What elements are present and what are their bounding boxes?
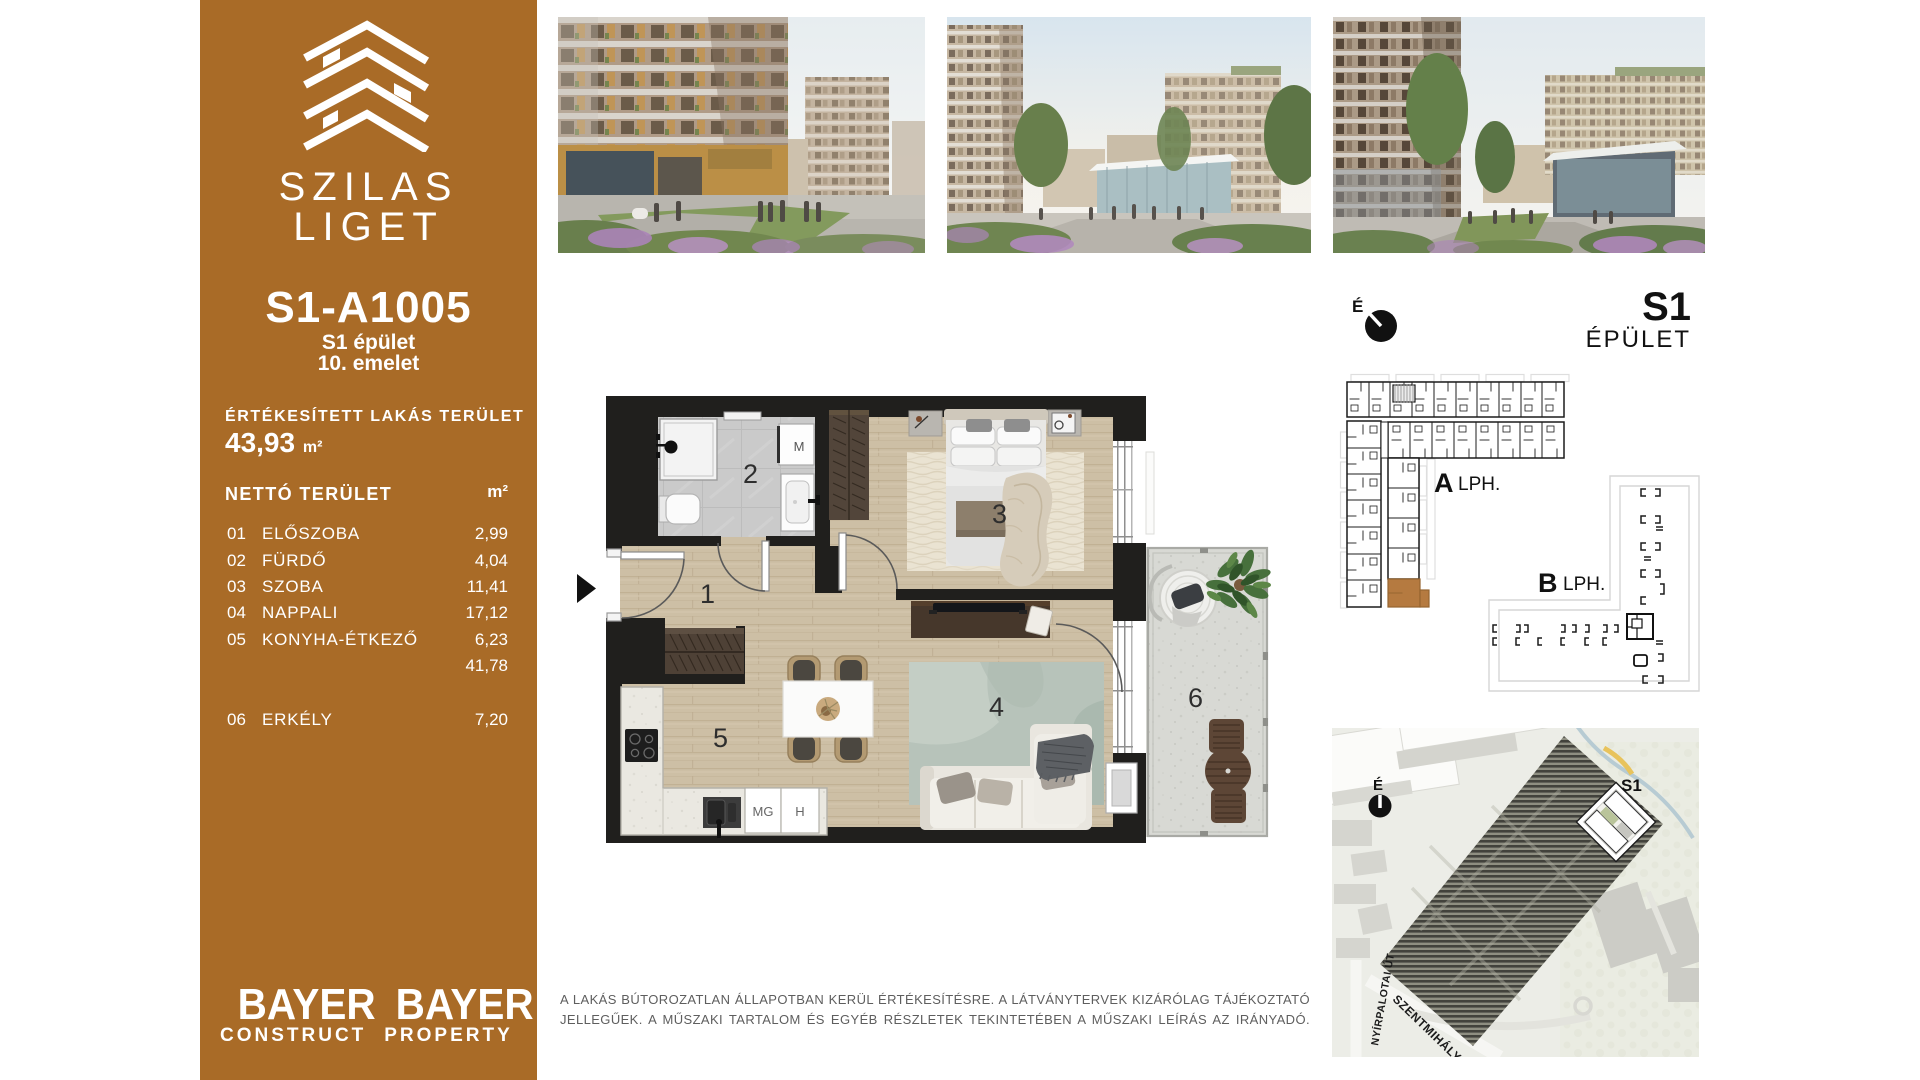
svg-text:3: 3 xyxy=(992,499,1007,529)
svg-text:LPH.: LPH. xyxy=(1563,574,1605,595)
svg-text:MG: MG xyxy=(753,804,774,819)
svg-text:A: A xyxy=(1434,468,1454,498)
svg-text:S1: S1 xyxy=(1642,285,1691,329)
svg-text:4: 4 xyxy=(989,692,1004,722)
svg-text:É: É xyxy=(1352,297,1363,316)
svg-text:M: M xyxy=(794,439,805,454)
svg-text:B: B xyxy=(1538,568,1558,598)
svg-text:S1: S1 xyxy=(1621,776,1642,795)
svg-text:1: 1 xyxy=(700,579,715,609)
svg-text:2: 2 xyxy=(743,459,758,489)
svg-text:É: É xyxy=(1373,777,1383,794)
svg-text:LPH.: LPH. xyxy=(1458,474,1500,495)
svg-text:6: 6 xyxy=(1188,683,1203,713)
svg-text:5: 5 xyxy=(713,723,728,753)
svg-text:ÉPÜLET: ÉPÜLET xyxy=(1586,326,1691,353)
svg-text:H: H xyxy=(795,804,804,819)
